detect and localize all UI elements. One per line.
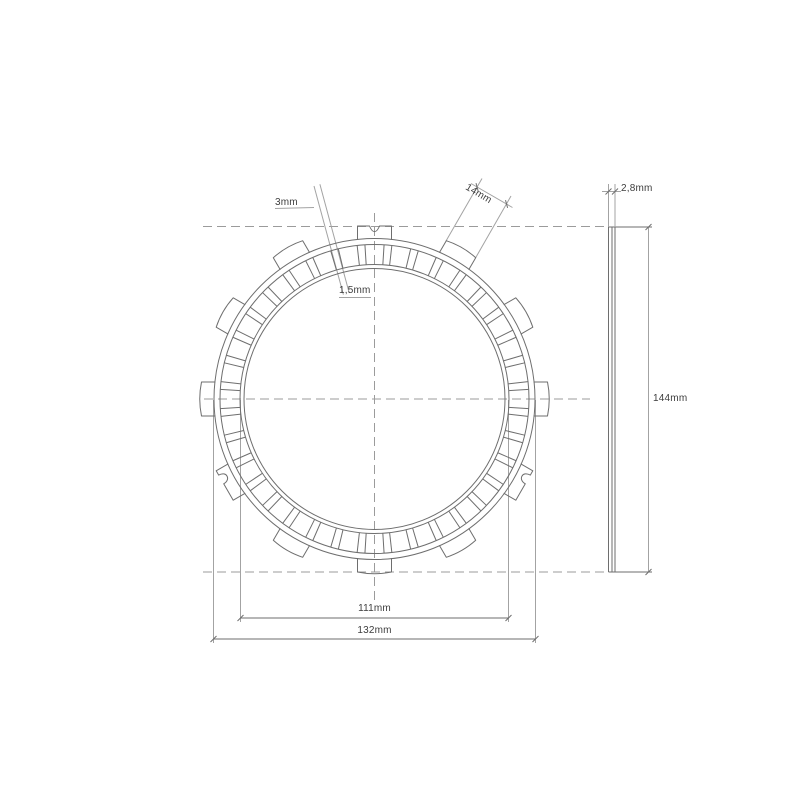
dim-label-overall-diameter: 144mm — [653, 393, 687, 404]
dim-label-friction-thickness: 1,5mm — [339, 285, 371, 296]
dim-label-groove-width: 3mm — [275, 197, 298, 208]
dim-label-outer-ring-diameter: 132mm — [351, 625, 398, 636]
dim-label-inner-diameter: 111mm — [351, 603, 398, 614]
technical-drawing-page: 3mm 1,5mm 14mm 2,8mm 144mm 111mm 132mm — [0, 0, 800, 800]
dim-label-plate-thickness: 2,8mm — [621, 183, 653, 194]
